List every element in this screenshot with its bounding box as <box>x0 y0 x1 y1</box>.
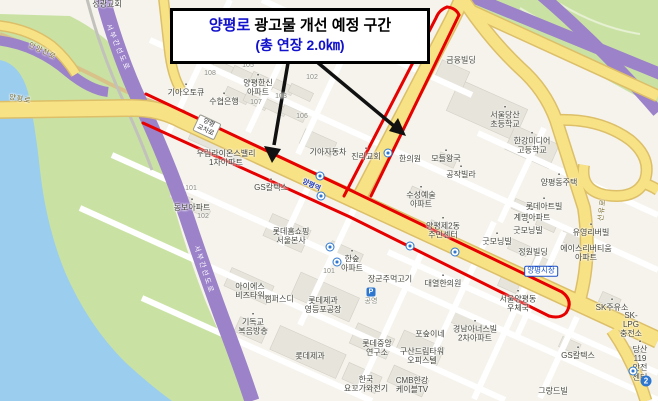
transit-stop-icon[interactable] <box>333 258 342 267</box>
map-label: 경남아너스빌 2차아파트 <box>453 319 497 342</box>
title-road-name: 양평로 <box>209 17 250 34</box>
map-label: 101 <box>185 185 197 193</box>
transit-stop-icon[interactable] <box>406 242 415 251</box>
map-label: 계명아파트 <box>514 208 551 222</box>
map-label: 기독교 복음방송 <box>238 312 267 335</box>
map-label: GS칼텍스 <box>254 178 288 192</box>
map-label: 굿모닝빌 <box>482 232 511 246</box>
map-label: 롯데중앙 연구소 <box>362 339 391 357</box>
parking-icon: P <box>367 288 376 297</box>
map-label: 한강미디어 고등학교 <box>514 131 551 154</box>
title-line1: 양평로 광고물 개선 예정 구간 <box>173 15 427 36</box>
transit-stop-icon[interactable] <box>316 172 325 181</box>
map-label: 수협은행 <box>209 92 238 106</box>
map-label: 공영 <box>365 298 378 306</box>
map-label: 양평한신 아파트 <box>243 73 272 96</box>
map-label: GS칼텍스 <box>561 346 595 360</box>
map-label: 정원빌딩 <box>518 247 547 256</box>
map-label: 포숲이네 <box>415 329 444 338</box>
map-label: 기아오토큐 <box>168 83 205 97</box>
map-label: 에이스리버티움 아파트 <box>560 244 612 262</box>
map-label: 롯데홈쇼핑 서울본사 <box>273 227 310 245</box>
transit-stop-icon[interactable] <box>384 149 393 158</box>
map-label: 굿모닝빌 <box>513 221 542 235</box>
map-label: SK-LPG 충전소 <box>618 311 645 339</box>
title-rest: 광고물 개선 예정 구간 <box>250 17 391 34</box>
map-label: 롯데제과 <box>295 351 324 360</box>
transit-stop-icon[interactable] <box>326 243 335 252</box>
map-label: 한의원 <box>399 154 421 163</box>
map-label: 102 <box>306 74 318 82</box>
title-box: 양평로 광고물 개선 예정 구간 (총 연장 2.0㎞) <box>170 8 430 64</box>
map-label: 양평시장 <box>524 266 558 277</box>
map-label: 진리교회 <box>351 147 380 161</box>
title-line2: (총 연장 2.0㎞) <box>173 36 427 56</box>
map-label: 기아자동차 <box>310 147 347 156</box>
map-label: 서울양평동 우체국 <box>500 289 537 312</box>
map-label: 103 <box>275 93 287 101</box>
map-label: 102 <box>197 213 209 221</box>
transit-stop-icon[interactable] <box>629 367 638 376</box>
map-label: 101 <box>323 268 335 276</box>
map-label: 금융빌딩 <box>446 55 475 64</box>
map-label: SK주유소 <box>596 298 629 312</box>
map-label: 양평동주택 <box>541 173 578 187</box>
map-label: 106 <box>296 113 308 121</box>
subway-line-badge[interactable]: 2 <box>641 376 652 387</box>
map-label: 롯데제과 영등포공장 <box>305 296 342 314</box>
map-label: 107 <box>250 99 262 107</box>
map-label: 그랑드빌 <box>538 386 567 395</box>
map-label: 성광교회 <box>92 0 121 9</box>
map-label: 동보아파트 <box>174 198 211 212</box>
map-canvas[interactable]: 성광교회기아오토큐수협은행108105104양평한신 아파트1031021071… <box>0 0 658 401</box>
transit-stop-icon[interactable] <box>451 248 460 257</box>
map-label: 우림라이온스밸리 1차아파트 <box>197 149 256 167</box>
map-label: CMB한강 케이블TV <box>396 376 429 394</box>
map-label: 아이에스 비즈타워 <box>235 282 264 300</box>
map-label: 캠퍼스디 <box>264 294 293 303</box>
map-label: 수성예술 아파트 <box>406 185 435 208</box>
map-label: 서울당산 초등학교 <box>490 105 519 128</box>
map-label: 양평제2동 주민센터 <box>426 216 460 239</box>
map-label: 한국 요꼬가와전기 <box>344 375 388 393</box>
map-label: 모들왕국 <box>431 149 460 163</box>
map-label: 대열한의원 <box>425 274 462 288</box>
map-label: 108 <box>204 70 216 78</box>
map-label: 유영리버빌 <box>573 223 610 237</box>
map-label: 장군주먹고기 <box>368 274 412 283</box>
map-label: 한숲 아파트 <box>341 249 363 272</box>
map-label: 구산드림타워 오피스텔 <box>400 347 444 365</box>
map-label: 공작빌라 <box>446 165 475 179</box>
transit-stop-icon[interactable] <box>317 192 326 201</box>
